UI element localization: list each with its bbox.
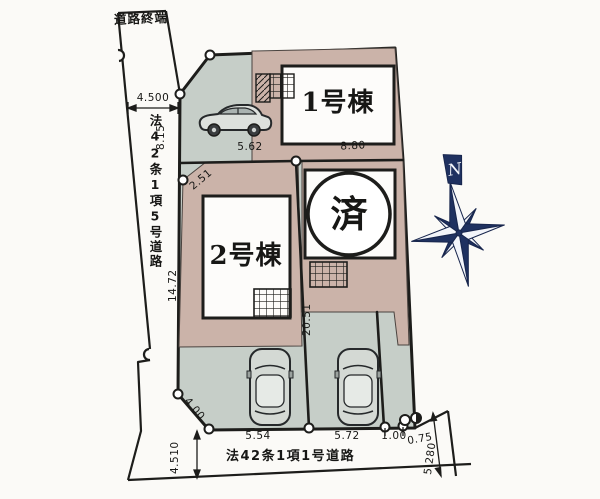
dim-lot2-frontage: 5.54 <box>238 431 278 442</box>
entrance-steps-1 <box>256 74 270 102</box>
dim-south-left: 4.510 <box>170 441 181 474</box>
road-end-label: 道路終端 <box>112 12 170 27</box>
car-top-left-icon <box>247 349 293 425</box>
car-top-right-icon <box>335 349 381 425</box>
compass-center <box>456 230 463 237</box>
entrance-hatch-2 <box>254 289 291 317</box>
building-1-label: 1号棟 <box>293 90 383 116</box>
dim-sold-frontage: 5.72 <box>327 431 367 442</box>
site-plan: N 道路終端 法42条1項5号道路 法42条1項1号道路 1号棟 2号棟 済 4… <box>0 0 600 499</box>
south-road-name: 法42条1項1号道路 <box>226 450 355 463</box>
entrance-hatch-1 <box>270 74 294 98</box>
dim-west-road-width: 4.500 <box>125 93 181 104</box>
building-2-label: 2号棟 <box>201 243 291 269</box>
sold-stamp-label: 済 <box>309 196 389 233</box>
entrance-hatch-sold <box>310 262 347 287</box>
dim-west-lower: 14.72 <box>168 269 179 302</box>
dim-center-depth: 20.51 <box>302 303 313 336</box>
site-plan-drawing: N <box>0 0 600 499</box>
dim-lot1-width: 8.80 <box>333 140 373 153</box>
dim-west-upper: 8.15 <box>156 125 167 150</box>
dim-north-width: 5.62 <box>230 142 270 153</box>
compass-rose: N <box>398 146 514 294</box>
